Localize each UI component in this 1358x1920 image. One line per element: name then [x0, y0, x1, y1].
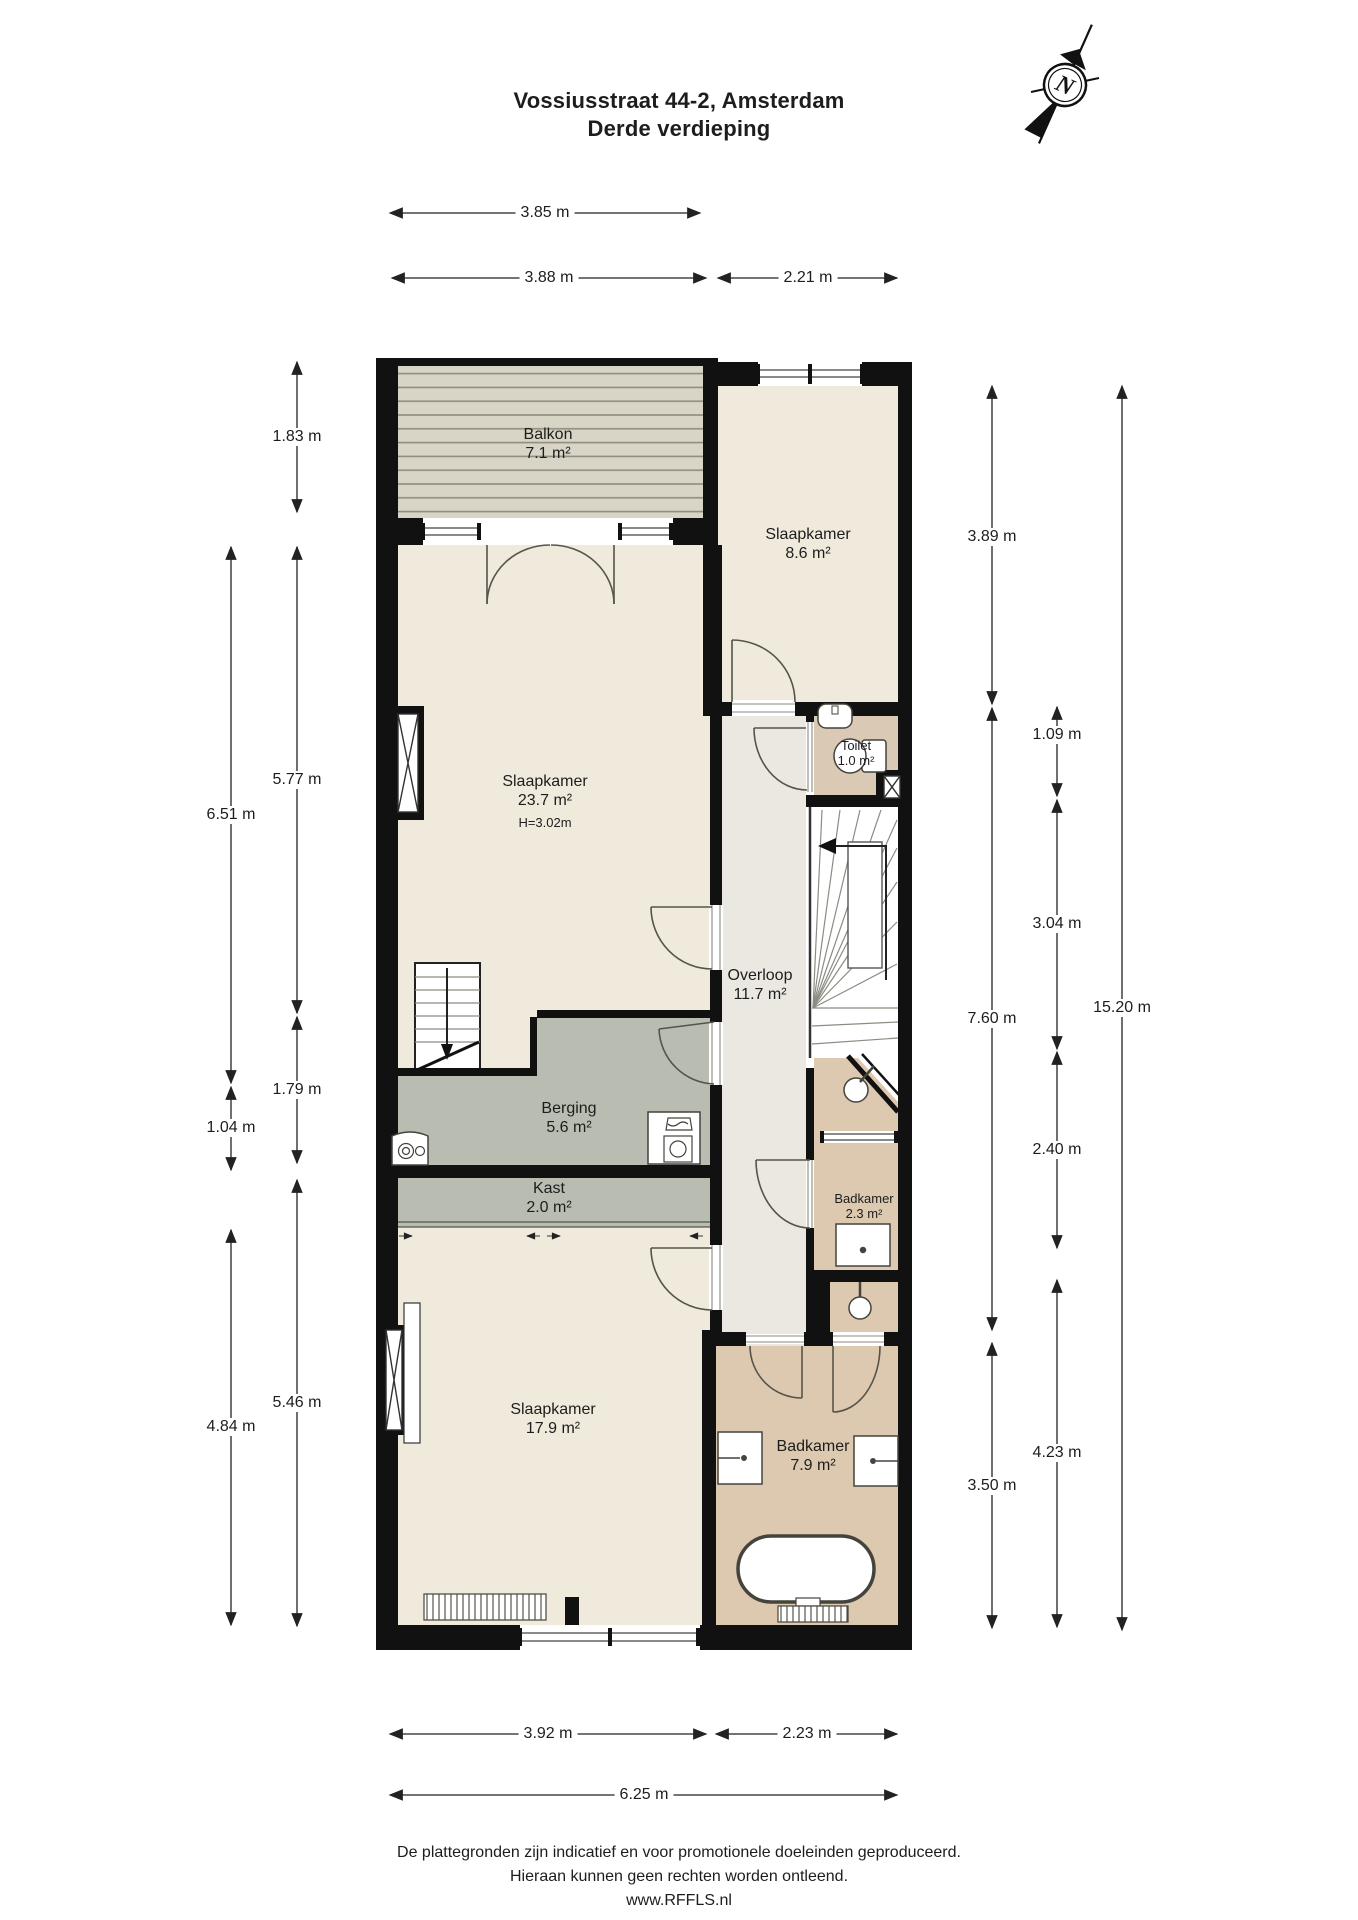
room-label-slaapkamer-onder: Slaapkamer 17.9 m²: [510, 1400, 595, 1438]
staircase-down: [415, 963, 480, 1072]
floor-plan-page: N Vossiusstraat 44-2, Amsterdam Derde ve…: [0, 0, 1358, 1920]
room-overloop-floor: [722, 716, 806, 1346]
dim-onder-totaal: 6.25 m: [615, 1786, 674, 1804]
dim-onder-rechts: 2.23 m: [778, 1725, 837, 1743]
room-label-badkamer-klein: Badkamer 2.3 m²: [834, 1191, 893, 1221]
page-title: Vossiusstraat 44-2, Amsterdam: [0, 88, 1358, 114]
dim-links-onder-buiten: 4.84 m: [202, 1418, 261, 1436]
room-label-slaapkamer-boven: Slaapkamer 8.6 m²: [765, 525, 850, 563]
dim-rechts-overloop: 7.60 m: [963, 1010, 1022, 1028]
dim-rechts-totaal: 15.20 m: [1088, 999, 1156, 1017]
radiator-icon: [424, 1594, 546, 1620]
boiler-icon: [392, 1132, 428, 1165]
window-bottom: [518, 1628, 700, 1646]
room-label-berging: Berging 5.6 m²: [541, 1099, 596, 1137]
closet: [404, 1303, 420, 1443]
radiator-icon: [778, 1606, 848, 1622]
footer-website: www.RFFLS.nl: [0, 1892, 1358, 1910]
dim-top-balkon: 3.85 m: [516, 204, 575, 222]
washbasin-icon: [844, 1078, 868, 1102]
dim-rechts-slaapkamer-boven: 3.89 m: [963, 528, 1022, 546]
dim-rechts-onder: 4.23 m: [1028, 1444, 1087, 1462]
dim-onder-links: 3.92 m: [519, 1725, 578, 1743]
dim-links-slaapkamer: 5.77 m: [268, 771, 327, 789]
dim-rechts-badkamer-klein: 2.40 m: [1028, 1141, 1087, 1159]
bathtub-icon: [738, 1536, 874, 1602]
room-label-balkon: Balkon 7.1 m²: [524, 425, 573, 463]
window-interior-badkamer: [820, 1131, 898, 1143]
dim-links-balkon: 1.83 m: [268, 428, 327, 446]
room-label-kast: Kast 2.0 m²: [526, 1179, 571, 1217]
footer-disclaimer-2: Hieraan kunnen geen rechten worden ontle…: [0, 1868, 1358, 1886]
washer-dryer-icon: [648, 1112, 700, 1164]
window-balcony-right: [618, 523, 673, 540]
dim-rechts-badkamer-groot: 3.50 m: [963, 1477, 1022, 1495]
room-label-slaapkamer-groot: Slaapkamer 23.7 m² H=3.02m: [502, 772, 587, 832]
dim-links-totaal-midden: 6.51 m: [202, 806, 261, 824]
room-label-badkamer-groot: Badkamer 7.9 m²: [777, 1437, 850, 1475]
dim-links-berging-buiten: 1.04 m: [202, 1119, 261, 1137]
page-subtitle: Derde verdieping: [0, 116, 1358, 142]
dim-top-links: 3.88 m: [520, 269, 579, 287]
room-height-note: H=3.02m: [502, 813, 587, 832]
shower-icon: [836, 1224, 890, 1266]
room-label-toilet: Toilet 1.0 m²: [838, 738, 875, 768]
footer-disclaimer-1: De plattegronden zijn indicatief en voor…: [0, 1844, 1358, 1862]
dim-rechts-toilet: 1.09 m: [1028, 726, 1087, 744]
room-label-overloop: Overloop 11.7 m²: [728, 966, 793, 1004]
washbasin-icon: [849, 1297, 871, 1319]
floor-plan-drawing: N: [0, 0, 1358, 1920]
window-balcony-left: [421, 523, 481, 540]
window-top: [756, 364, 864, 384]
dim-top-rechts: 2.21 m: [779, 269, 838, 287]
dim-links-berging: 1.79 m: [268, 1081, 327, 1099]
dim-rechts-trap: 3.04 m: [1028, 915, 1087, 933]
dim-links-slaapkamer-onder: 5.46 m: [268, 1394, 327, 1412]
